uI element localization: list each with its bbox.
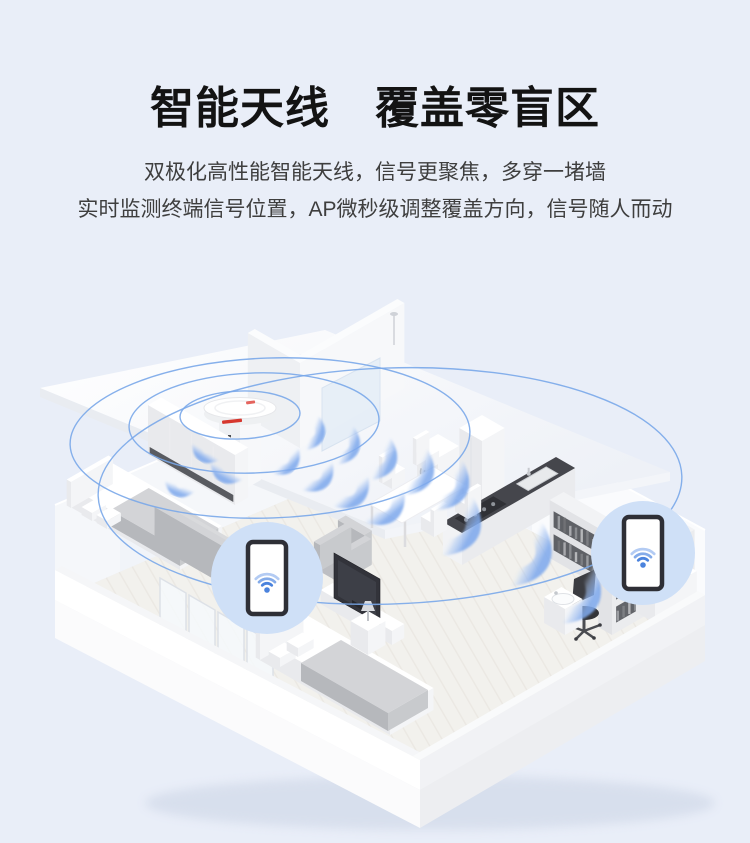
coverage-illustration [0,283,750,843]
wifi-icon [640,562,646,568]
phone-signal-badge-left [211,522,323,634]
page: 智能天线 覆盖零盲区 双极化高性能智能天线，信号更聚焦，多穿一堵墙 实时监测终端… [0,0,750,843]
page-title: 智能天线 覆盖零盲区 [0,0,750,136]
phone-signal-badge-right [591,501,695,605]
header: 智能天线 覆盖零盲区 双极化高性能智能天线，信号更聚焦，多穿一堵墙 实时监测终端… [0,0,750,228]
wifi-icon [264,587,270,593]
subtitle-line-2: 实时监测终端信号位置，AP微秒级调整覆盖方向，信号随人而动 [0,191,750,228]
ceiling-ap-device [204,398,276,426]
apartment-isometric-scene [0,283,750,843]
subtitle: 双极化高性能智能天线，信号更聚焦，多穿一堵墙 实时监测终端信号位置，AP微秒级调… [0,154,750,228]
subtitle-line-1: 双极化高性能智能天线，信号更聚焦，多穿一堵墙 [0,154,750,191]
